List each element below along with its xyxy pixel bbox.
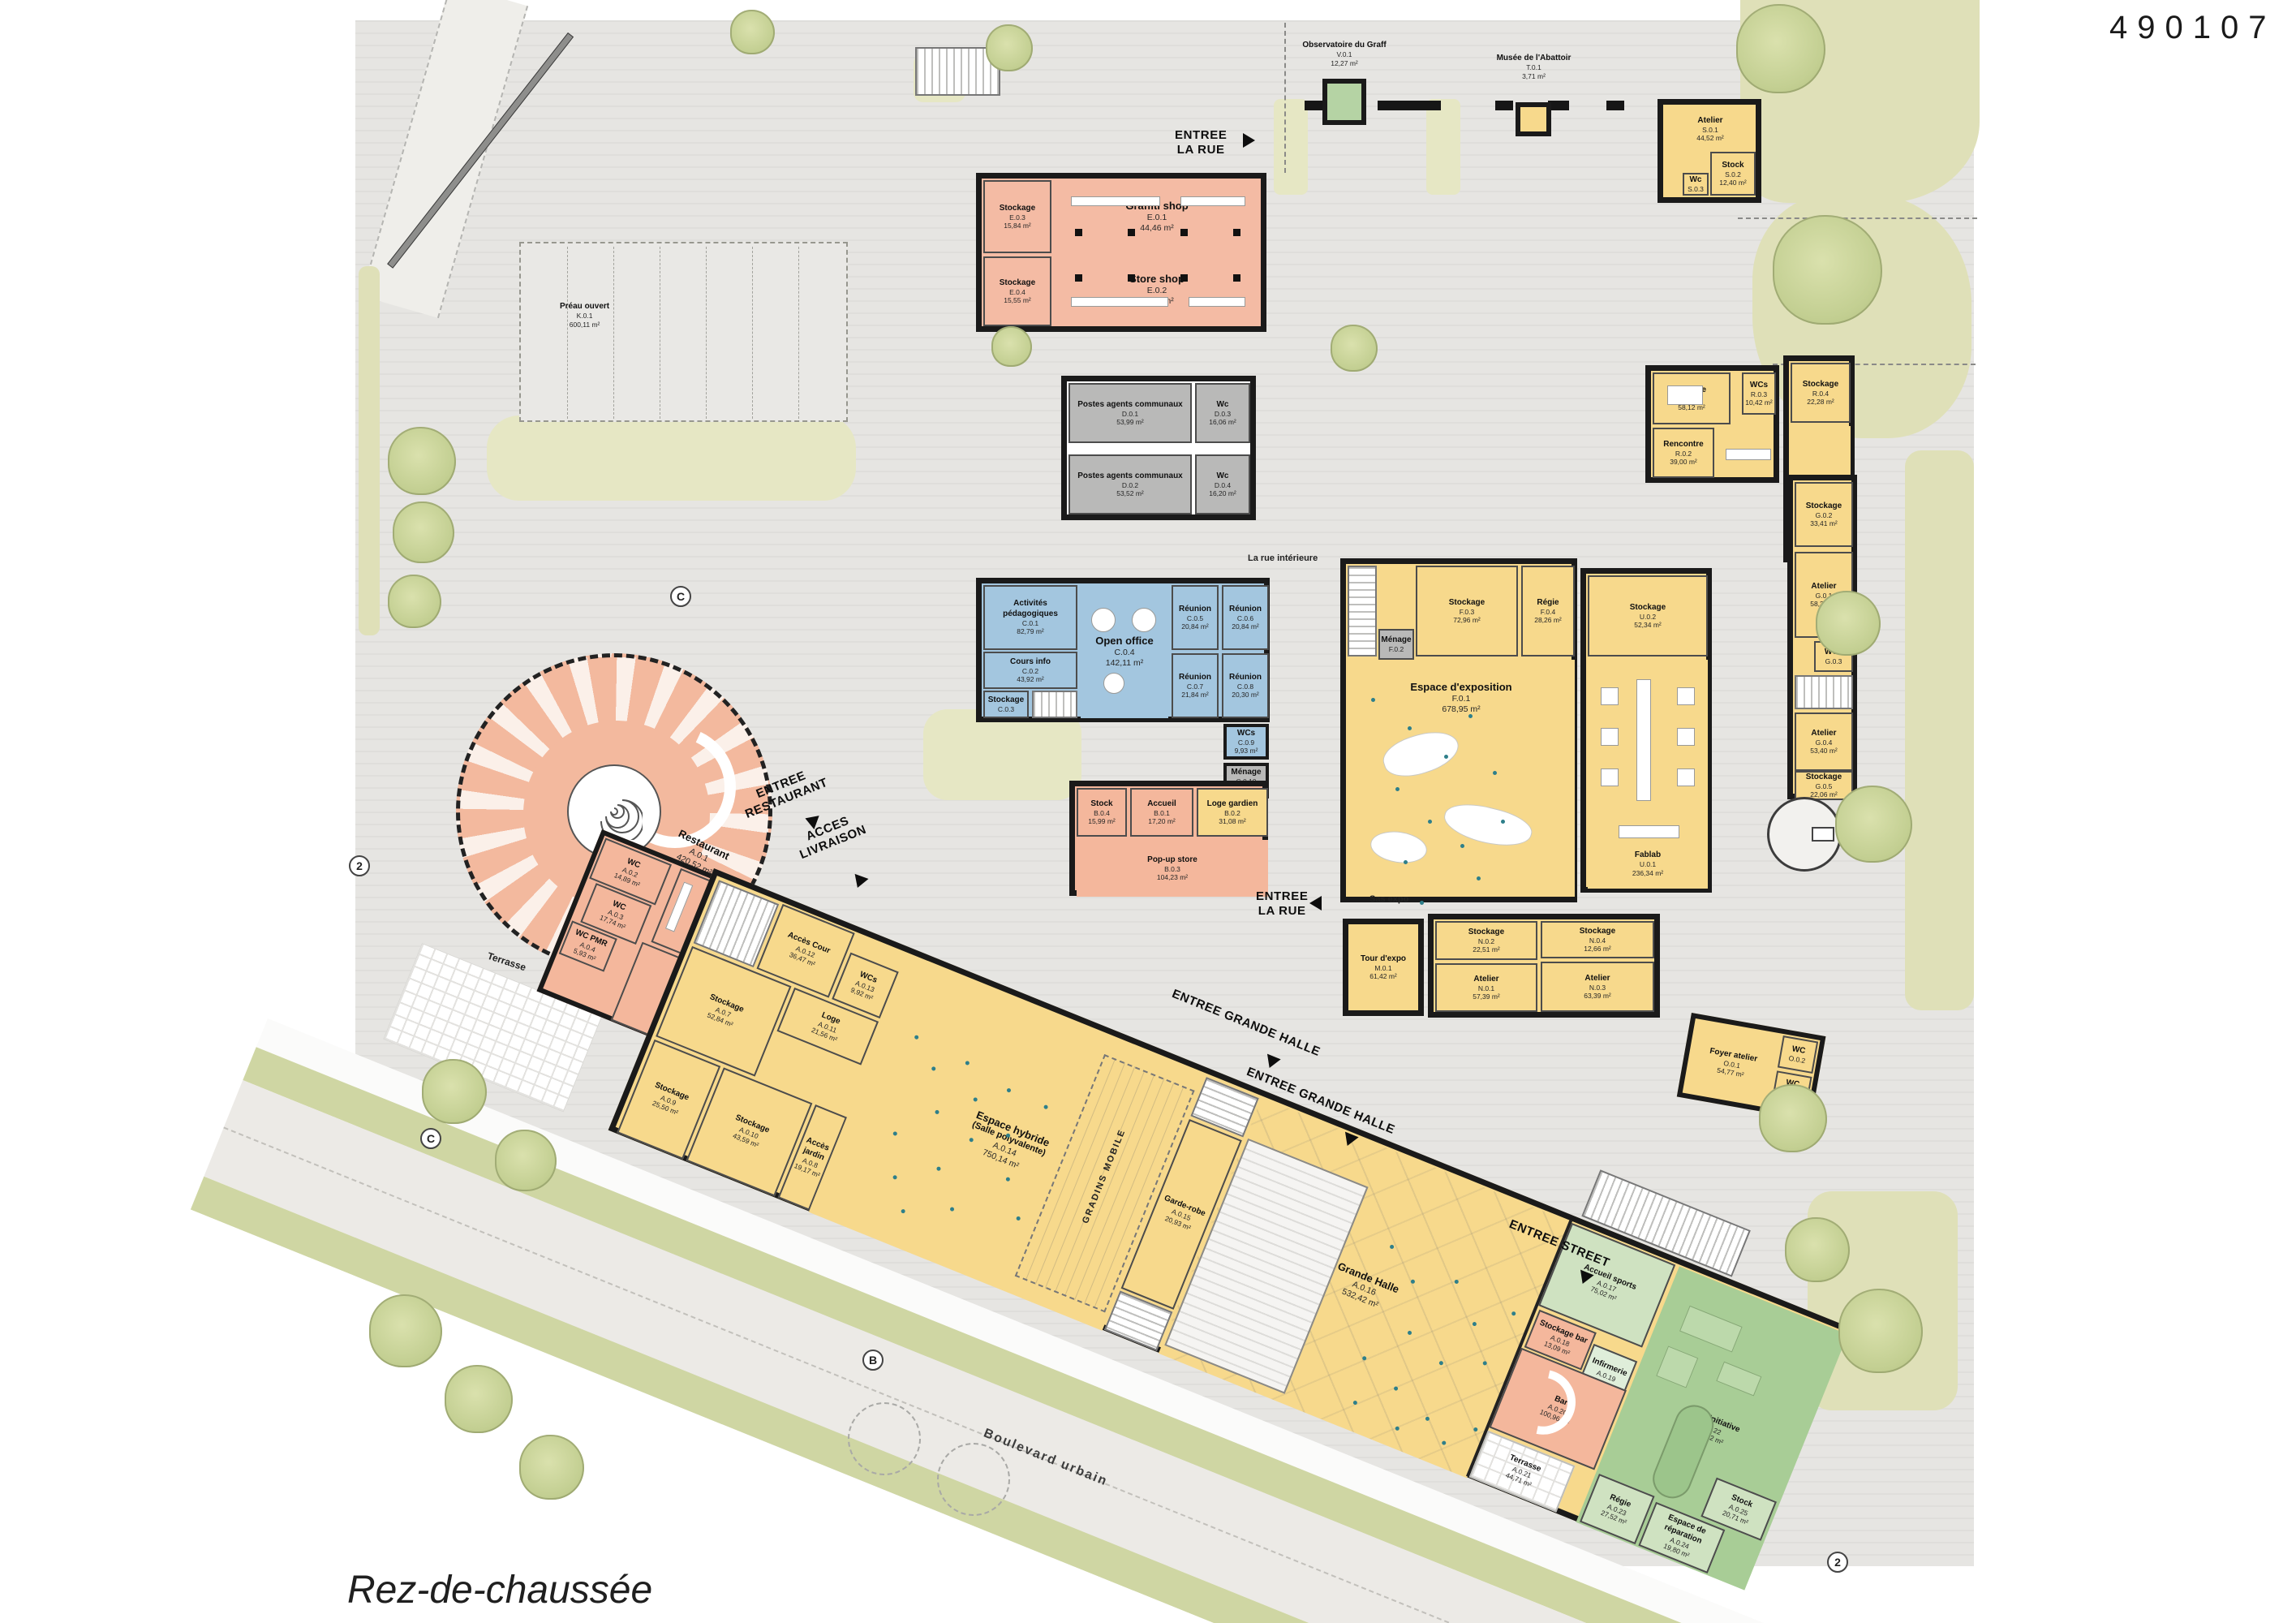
building-offices: Activités pédagogiquesC.0.182,79 m² Cour… xyxy=(976,578,1270,722)
tree xyxy=(1785,1217,1850,1282)
building-accueil: StockB.0.415,99 m² AccueilB.0.117,20 m² … xyxy=(1069,781,1268,896)
room-g05: StockageG.0.522,06 m² xyxy=(1795,771,1853,800)
planned-tree xyxy=(937,1443,1010,1516)
vegetation-patch xyxy=(359,266,380,635)
room-c05: RéunionC.0.520,84 m² xyxy=(1172,585,1219,650)
building-rencontre: CuisineR.0.158,12 m² WCsR.0.310,42 m² Re… xyxy=(1645,365,1779,483)
room-c08: RéunionC.0.820,30 m² xyxy=(1222,653,1269,718)
room-s03: WcS.0.3 xyxy=(1683,173,1709,196)
preau-column-line xyxy=(752,247,753,419)
guide-line xyxy=(1284,23,1286,173)
tree xyxy=(1736,4,1825,93)
table xyxy=(1132,608,1156,632)
section-marker-c: C xyxy=(670,586,691,607)
preau-column-line xyxy=(798,247,799,419)
building-shops: StockageE.0.315,84 m² Graffiti shopE.0.1… xyxy=(976,173,1266,332)
room-u02: StockageU.0.252,34 m² xyxy=(1588,575,1708,657)
spiral-stair-icon xyxy=(586,783,643,840)
room-r02: RencontreR.0.239,00 m² xyxy=(1653,428,1714,478)
room-n01: AtelierN.0.157,39 m² xyxy=(1435,963,1537,1012)
tree xyxy=(445,1365,513,1433)
floor-title: Rez-de-chaussée xyxy=(347,1568,652,1612)
room-b02: Loge gardienB.0.231,08 m² xyxy=(1197,788,1268,837)
shop-shelf xyxy=(1180,196,1245,206)
shop-shelf xyxy=(1071,297,1168,307)
building-atelier-n: StockageN.0.222,51 m² AtelierN.0.157,39 … xyxy=(1428,914,1660,1018)
tree xyxy=(422,1059,487,1124)
building-tour-expo: Tour d'expoM.0.161,42 m² xyxy=(1343,919,1424,1016)
vegetation-patch xyxy=(1905,450,1974,1010)
workbench xyxy=(1677,768,1695,786)
room-n02: StockageN.0.222,51 m² xyxy=(1435,921,1537,960)
column xyxy=(1075,274,1082,282)
tree xyxy=(1835,786,1912,863)
bar-counter-arc xyxy=(1498,1357,1589,1447)
tree xyxy=(986,24,1033,71)
skate-ramp xyxy=(1679,1306,1743,1353)
room-r03: WCsR.0.310,42 m² xyxy=(1742,372,1776,415)
table xyxy=(1091,608,1116,632)
sheet-number: 490107 xyxy=(2109,10,2276,46)
preau-column-line xyxy=(567,247,568,419)
vegetation-patch xyxy=(487,415,856,501)
floor-plan-sheet: Boulevard urbain Préau ouvertK.0.1600,11… xyxy=(0,0,2296,1623)
tree xyxy=(388,427,456,495)
graffiti-wall xyxy=(1378,101,1441,110)
room-b01: AccueilB.0.117,20 m² xyxy=(1130,788,1193,837)
room-b03: Pop-up storeB.0.3104,23 m² xyxy=(1077,840,1268,897)
tree xyxy=(1773,215,1882,325)
tree xyxy=(991,326,1032,367)
building-preau-ouvert: Préau ouvertK.0.1600,11 m² xyxy=(519,242,848,422)
tree xyxy=(1759,1084,1827,1152)
room-m01: Tour d'expoM.0.161,42 m² xyxy=(1350,926,1417,1009)
room-r04: StockageR.0.422,28 m² xyxy=(1791,363,1851,423)
entree-la-rue-mid-label: ENTREELA RUE xyxy=(1256,889,1308,918)
sofa xyxy=(1726,449,1771,460)
vegetation-patch xyxy=(923,709,1081,800)
column xyxy=(1180,274,1188,282)
preau-column-line xyxy=(613,247,614,419)
shop-shelf xyxy=(1071,196,1160,206)
rue-interieure-label: La rue intérieure xyxy=(1248,553,1318,563)
workbench xyxy=(1601,768,1619,786)
stair-ateliers xyxy=(1795,675,1853,709)
tree xyxy=(519,1435,584,1500)
workbench xyxy=(1601,687,1619,705)
entrance-arrow-icon xyxy=(1243,133,1255,148)
tree xyxy=(1838,1289,1923,1373)
column xyxy=(1075,229,1082,236)
room-s01: AtelierS.0.144,52 m² xyxy=(1665,106,1756,152)
water-tower xyxy=(1767,797,1842,872)
section-marker-2: 2 xyxy=(349,855,370,876)
gradins-mobile-label: GRADINS MOBILE xyxy=(1081,1127,1128,1225)
room-c03: StockageC.0.3 xyxy=(983,691,1029,718)
building-agents: Postes agents communauxD.0.153,99 m² WcD… xyxy=(1061,376,1256,520)
preau-column-line xyxy=(660,247,660,419)
building-musee xyxy=(1516,102,1551,136)
room-e04: StockageE.0.415,55 m² xyxy=(983,256,1051,326)
room-c07: RéunionC.0.721,84 m² xyxy=(1172,653,1219,718)
workbench xyxy=(1619,825,1679,838)
tree xyxy=(1816,591,1881,656)
tree xyxy=(369,1294,442,1367)
workbench xyxy=(1636,679,1651,801)
table xyxy=(1667,385,1703,405)
skate-pool xyxy=(1647,1399,1719,1504)
building-observatoire xyxy=(1322,79,1366,125)
tree xyxy=(730,10,775,54)
room-s02: StockS.0.212,40 m² xyxy=(1710,152,1756,196)
shop-shelf xyxy=(1189,297,1245,307)
room-d03: WcD.0.316,06 m² xyxy=(1195,383,1250,443)
room-d02: Postes agents communauxD.0.253,52 m² xyxy=(1068,454,1192,514)
section-marker-2: 2 xyxy=(1827,1552,1848,1573)
visitor-dots xyxy=(1371,698,1375,702)
tree xyxy=(393,502,454,563)
entrance-arrow-icon xyxy=(1309,896,1322,911)
room-e02: Store shopE.0.243,77 m² xyxy=(1053,253,1261,326)
tree xyxy=(388,575,441,628)
room-f04: RégieF.0.428,26 m² xyxy=(1521,566,1575,657)
column xyxy=(1128,274,1135,282)
room-b04: StockB.0.415,99 m² xyxy=(1077,788,1127,837)
building-atelier-s: AtelierS.0.144,52 m² StockS.0.212,40 m² … xyxy=(1658,99,1761,203)
stair-offices xyxy=(1032,691,1077,718)
guide-line xyxy=(1738,217,1977,219)
room-n03: AtelierN.0.363,39 m² xyxy=(1541,962,1654,1012)
room-n04: StockageN.0.412,66 m² xyxy=(1541,921,1654,958)
column xyxy=(1128,229,1135,236)
stair-exposition xyxy=(1348,566,1377,657)
column xyxy=(1180,229,1188,236)
room-g02: StockageG.0.233,41 m² xyxy=(1795,482,1853,547)
section-marker-b: B xyxy=(862,1350,884,1371)
preau-column-line xyxy=(706,247,707,419)
graffiti-wall xyxy=(1606,101,1624,110)
skate-ramp xyxy=(1656,1345,1698,1388)
entree-la-rue-top-label: ENTREELA RUE xyxy=(1175,128,1227,157)
room-c02: Cours infoC.0.243,92 m² xyxy=(983,652,1077,689)
room-f01: Espace d'expositionF.0.1678,95 m² xyxy=(1348,660,1575,897)
room-e03: StockageE.0.315,84 m² xyxy=(983,180,1051,253)
room-e01: Graffiti shopE.0.144,46 m² xyxy=(1053,180,1261,253)
room-o02: WCO.0.2 xyxy=(1778,1035,1818,1074)
graffiti-wall xyxy=(1495,101,1513,110)
room-c01: Activités pédagogiquesC.0.182,79 m² xyxy=(983,585,1077,650)
column xyxy=(1233,274,1240,282)
column xyxy=(1233,229,1240,236)
room-f02: MénageF.0.2 xyxy=(1378,629,1414,660)
room-f03: StockageF.0.372,96 m² xyxy=(1416,566,1518,657)
room-c04: Open officeC.0.4142,11 m² xyxy=(1081,585,1168,718)
workbench xyxy=(1677,728,1695,746)
tree xyxy=(495,1130,557,1191)
room-d01: Postes agents communauxD.0.153,99 m² xyxy=(1068,383,1192,443)
building-exposition: MénageF.0.2 StockageF.0.372,96 m² RégieF… xyxy=(1340,558,1577,902)
vegetation-patch xyxy=(1274,99,1308,195)
room-c06: RéunionC.0.620,84 m² xyxy=(1222,585,1269,650)
sas-expo-label: Sas expo xyxy=(1369,894,1408,904)
room-g04: AtelierG.0.453,40 m² xyxy=(1795,712,1853,771)
planned-tree xyxy=(848,1402,921,1475)
room-d04: WcD.0.416,20 m² xyxy=(1195,454,1250,514)
workbench xyxy=(1677,687,1695,705)
building-fablab: StockageU.0.252,34 m² FablabU.0.1236,34 … xyxy=(1580,568,1712,893)
room-c09: WCsC.0.99,93 m² xyxy=(1223,724,1269,760)
room-o01: Foyer atelierO.0.154,77 m² xyxy=(1684,1020,1780,1107)
water-tower-cabin xyxy=(1812,827,1834,842)
table xyxy=(1103,673,1124,694)
section-marker-c: C xyxy=(420,1128,441,1149)
vegetation-patch xyxy=(1426,99,1460,195)
workbench xyxy=(1601,728,1619,746)
tree xyxy=(1331,325,1378,372)
skate-ramp xyxy=(1716,1362,1761,1397)
